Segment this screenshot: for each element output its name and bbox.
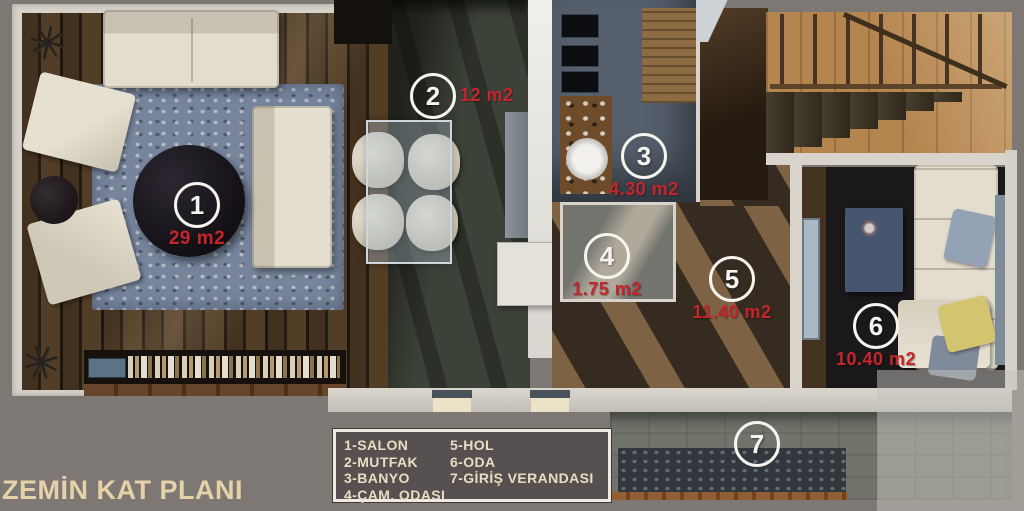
- room-number: 3: [637, 141, 651, 172]
- roof-corner: [696, 0, 768, 42]
- legend-item: 1-SALON: [344, 437, 450, 454]
- room-number: 6: [869, 311, 883, 342]
- dining-table-glass: [366, 120, 452, 264]
- room-area-label: 1.75 m2: [572, 279, 642, 300]
- room-number-badge: 4: [584, 233, 630, 279]
- bathroom-wood-deck: [642, 8, 700, 103]
- stair-step: [794, 92, 822, 147]
- oda-left-window: [802, 218, 820, 340]
- room-number: 7: [750, 429, 764, 460]
- legend-item: 2-MUTFAK: [344, 454, 450, 471]
- stairs-bottom-wall: [766, 153, 1012, 165]
- kitchen-appliance: [497, 242, 554, 306]
- legend-item: 5-HOL: [450, 437, 608, 454]
- oda-right-wall: [1005, 150, 1017, 390]
- oda-right-window: [995, 195, 1005, 365]
- room-number: 2: [426, 81, 440, 112]
- legend-item: 3-BANYO: [344, 470, 450, 487]
- salon-sofa-top: [103, 10, 279, 88]
- room-area-label: 29 m2: [169, 228, 225, 250]
- stairs-railing: [770, 84, 1002, 89]
- door-threshold: [530, 390, 570, 398]
- room-number-badge: 1: [174, 182, 220, 228]
- bathroom-panel: [561, 14, 599, 38]
- salon-side-table: [30, 176, 78, 224]
- stair-step: [906, 92, 934, 111]
- legend-item: 6-ODA: [450, 454, 608, 471]
- stair-step: [878, 92, 906, 120]
- legend-item: 4-ÇAM. ODASI: [344, 487, 450, 504]
- stair-step: [850, 92, 878, 129]
- oda-rug: [845, 208, 903, 292]
- room-number-badge: 2: [410, 73, 456, 119]
- room-number-badge: 6: [853, 303, 899, 349]
- plan-title: ZEMİN KAT PLANI: [2, 475, 243, 506]
- kitchen-top-wall: [334, 0, 392, 44]
- room-number: 5: [725, 264, 739, 295]
- room-number-badge: 7: [734, 421, 780, 467]
- room-area-label: 12 m2: [460, 85, 514, 106]
- bathroom-sink: [566, 138, 608, 180]
- room-number-badge: 3: [621, 133, 667, 179]
- room-area-label: 10.40 m2: [836, 349, 916, 370]
- room-number: 1: [190, 190, 204, 221]
- salon-sofa-right: [252, 106, 332, 268]
- bathroom-panel: [561, 45, 599, 67]
- room-area-label: 4.30 m2: [609, 179, 679, 200]
- stair-step: [934, 92, 962, 102]
- stairs-railing-posts: [780, 14, 996, 86]
- door-sill: [531, 398, 569, 412]
- bathroom-panel: [561, 71, 599, 93]
- veranda-rug: [618, 448, 846, 494]
- stair-step: [822, 92, 850, 138]
- room-number-badge: 5: [709, 256, 755, 302]
- veranda-wood-edge: [612, 492, 848, 500]
- floor-plan-image: ✳ ✳: [0, 0, 1024, 511]
- oda-left-wall: [790, 162, 802, 390]
- translucent-overlay: [877, 370, 1024, 511]
- room-area-label: 11.40 m2: [692, 302, 771, 323]
- door-threshold: [432, 390, 472, 398]
- bookshelf-books: [128, 356, 340, 378]
- legend-item: 7-GİRİŞ VERANDASI: [450, 470, 608, 487]
- salon-bottom-wood-strip: [84, 384, 346, 396]
- stair-step: [766, 92, 794, 156]
- legend-column-2: 5-HOL 6-ODA 7-GİRİŞ VERANDASI: [450, 437, 608, 499]
- door-sill: [433, 398, 471, 412]
- legend-box: 1-SALON 2-MUTFAK 3-BANYO 4-ÇAM. ODASI 5-…: [333, 429, 611, 502]
- room-number: 4: [600, 241, 614, 272]
- legend-column-1: 1-SALON 2-MUTFAK 3-BANYO 4-ÇAM. ODASI: [344, 437, 450, 499]
- bookshelf-screen: [88, 358, 126, 378]
